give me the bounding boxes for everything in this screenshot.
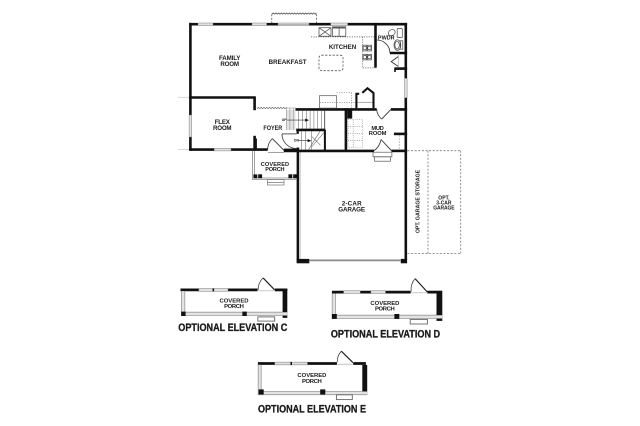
svg-text:ROOM: ROOM [213, 125, 232, 132]
svg-text:COVERED: COVERED [370, 301, 399, 307]
svg-text:ROOM: ROOM [369, 131, 387, 137]
svg-text:COVERED: COVERED [297, 373, 326, 379]
svg-text:KITCHEN: KITCHEN [329, 44, 357, 51]
svg-text:OPT. GARAGE STORAGE: OPT. GARAGE STORAGE [416, 170, 422, 233]
svg-text:OPTIONAL ELEVATION C: OPTIONAL ELEVATION C [178, 322, 287, 334]
svg-text:ROOM: ROOM [220, 61, 239, 68]
svg-text:PWDR: PWDR [378, 35, 395, 41]
svg-text:BREAKFAST: BREAKFAST [269, 59, 307, 66]
svg-text:DN: DN [294, 138, 299, 142]
svg-text:PORCH: PORCH [265, 167, 284, 173]
svg-text:PORCH: PORCH [224, 304, 244, 310]
svg-text:UP: UP [282, 118, 287, 122]
svg-text:GARAGE: GARAGE [338, 207, 365, 214]
svg-text:GARAGE: GARAGE [433, 205, 455, 211]
svg-text:PORCH: PORCH [302, 379, 322, 385]
svg-text:PORCH: PORCH [375, 307, 395, 313]
svg-text:OPTIONAL ELEVATION D: OPTIONAL ELEVATION D [331, 329, 440, 341]
svg-text:FOYER: FOYER [263, 125, 282, 132]
svg-text:COVERED: COVERED [220, 298, 249, 304]
svg-text:OPTIONAL ELEVATION E: OPTIONAL ELEVATION E [258, 404, 366, 416]
